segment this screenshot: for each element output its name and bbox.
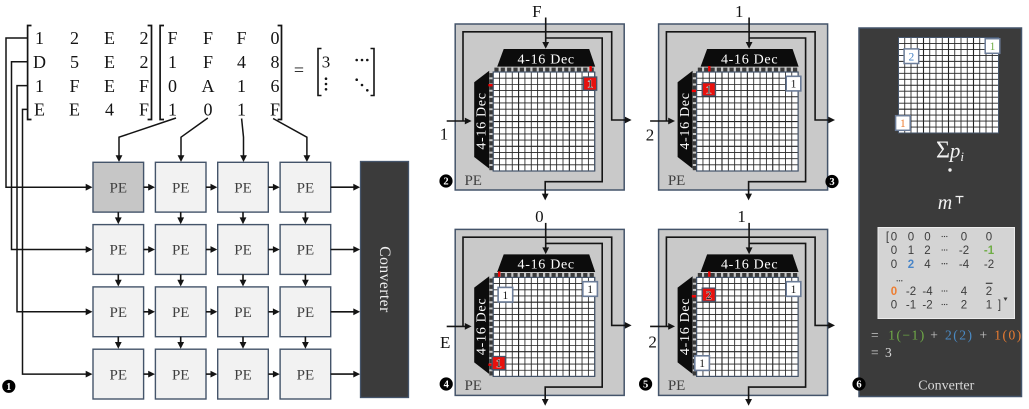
svg-text:-2: -2 <box>922 300 932 312</box>
svg-text:= 3: = 3 <box>871 345 893 360</box>
svg-text:2: 2 <box>646 126 655 145</box>
svg-text:E: E <box>104 28 115 48</box>
svg-text:4-16 Dec: 4-16 Dec <box>721 52 778 67</box>
svg-text:4: 4 <box>444 380 450 391</box>
svg-text:2: 2 <box>648 333 657 352</box>
svg-text:1: 1 <box>168 100 177 120</box>
svg-text:4: 4 <box>924 259 931 271</box>
svg-text:1: 1 <box>237 100 246 120</box>
svg-text:0: 0 <box>891 232 897 244</box>
svg-text:PE: PE <box>172 367 190 383</box>
svg-text:5: 5 <box>70 52 79 72</box>
svg-text:1: 1 <box>168 52 177 72</box>
svg-text:0: 0 <box>908 232 914 244</box>
svg-text:6: 6 <box>856 380 861 391</box>
svg-text:F: F <box>203 52 213 72</box>
svg-text:PE: PE <box>297 180 315 196</box>
svg-text:2: 2 <box>140 28 149 48</box>
svg-text:F: F <box>203 28 213 48</box>
svg-text:0: 0 <box>891 245 897 257</box>
svg-text:Converter: Converter <box>918 379 974 394</box>
svg-text:4-16 Dec: 4-16 Dec <box>518 52 575 67</box>
svg-text:PE: PE <box>668 173 686 189</box>
svg-text:E: E <box>440 333 450 352</box>
svg-text:]: ] <box>998 300 1001 312</box>
svg-text:PE: PE <box>172 180 190 196</box>
svg-text:4-16 Dec: 4-16 Dec <box>678 92 693 149</box>
svg-text:1: 1 <box>986 300 992 312</box>
svg-text:0: 0 <box>924 232 930 244</box>
svg-text:-2: -2 <box>906 286 916 298</box>
svg-text:0: 0 <box>891 286 897 298</box>
svg-text:PE: PE <box>172 305 190 321</box>
svg-text:F: F <box>236 28 246 48</box>
svg-text:2: 2 <box>924 245 930 257</box>
svg-text:0: 0 <box>961 232 967 244</box>
svg-text:E: E <box>104 52 115 72</box>
svg-text:1: 1 <box>503 290 509 302</box>
svg-text:-2: -2 <box>959 245 969 257</box>
svg-text:1: 1 <box>706 84 712 96</box>
svg-text:PE: PE <box>464 173 482 189</box>
svg-text:F: F <box>139 76 149 96</box>
svg-text:PE: PE <box>234 243 252 259</box>
svg-text:1: 1 <box>440 125 449 144</box>
svg-text:PE: PE <box>668 378 686 394</box>
svg-text:0: 0 <box>986 232 992 244</box>
svg-text:E: E <box>104 76 115 96</box>
svg-text:1: 1 <box>6 382 11 393</box>
svg-text:1: 1 <box>990 41 996 53</box>
svg-text:-4: -4 <box>959 259 970 271</box>
svg-text:PE: PE <box>110 180 128 196</box>
svg-text:PE: PE <box>110 305 128 321</box>
svg-text:Σpi: Σpi <box>936 138 964 165</box>
svg-text:2: 2 <box>909 51 915 63</box>
svg-text:2: 2 <box>986 286 992 298</box>
svg-text:0: 0 <box>891 300 897 312</box>
svg-text:E: E <box>69 100 80 120</box>
svg-text:2: 2 <box>908 259 914 271</box>
svg-text:F: F <box>270 100 280 120</box>
svg-text:4: 4 <box>237 52 246 72</box>
svg-text:E: E <box>34 100 45 120</box>
svg-text:PE: PE <box>110 367 128 383</box>
svg-text:-4: -4 <box>922 286 933 298</box>
svg-text:2: 2 <box>443 177 448 188</box>
svg-text:2: 2 <box>70 28 79 48</box>
svg-text:1: 1 <box>737 207 746 226</box>
svg-text:0: 0 <box>271 28 280 48</box>
svg-text:0: 0 <box>168 76 177 96</box>
svg-text:0: 0 <box>204 100 213 120</box>
svg-text:-2: -2 <box>984 259 994 271</box>
svg-text:PE: PE <box>297 305 315 321</box>
svg-text:1: 1 <box>791 284 797 296</box>
svg-text:+: + <box>980 327 989 342</box>
svg-text:D: D <box>33 52 46 72</box>
svg-text:1: 1 <box>900 118 906 130</box>
svg-text:1(0): 1(0) <box>994 327 1023 342</box>
svg-text:1: 1 <box>699 358 705 370</box>
svg-text:1(−1): 1(−1) <box>888 327 926 342</box>
svg-text:8: 8 <box>271 52 280 72</box>
svg-text:PE: PE <box>110 243 128 259</box>
svg-text:1: 1 <box>496 358 502 370</box>
svg-text:4: 4 <box>105 100 114 120</box>
svg-text:4-16 Dec: 4-16 Dec <box>475 298 490 355</box>
svg-text:-1: -1 <box>906 300 916 312</box>
svg-text:=: = <box>871 327 880 342</box>
svg-text:PE: PE <box>234 180 252 196</box>
svg-text:PE: PE <box>464 378 482 394</box>
svg-text:1: 1 <box>735 2 744 21</box>
svg-text:-1: -1 <box>984 245 995 257</box>
svg-text:2(2): 2(2) <box>945 327 974 342</box>
svg-text:F: F <box>167 28 177 48</box>
svg-text:0: 0 <box>891 259 897 271</box>
svg-text:4-16 Dec: 4-16 Dec <box>475 92 490 149</box>
svg-text:2: 2 <box>706 290 712 302</box>
svg-text:PE: PE <box>297 243 315 259</box>
svg-text:+: + <box>930 327 939 342</box>
svg-text:4-16 Dec: 4-16 Dec <box>518 258 575 273</box>
svg-text:F: F <box>139 100 149 120</box>
svg-text:1: 1 <box>35 28 44 48</box>
svg-text:1: 1 <box>587 79 593 91</box>
svg-text:1: 1 <box>791 79 797 91</box>
svg-text:2: 2 <box>961 300 967 312</box>
svg-text:PE: PE <box>297 367 315 383</box>
svg-text:1: 1 <box>587 284 593 296</box>
svg-text:4: 4 <box>961 286 968 298</box>
svg-text:1: 1 <box>35 76 44 96</box>
svg-text:F: F <box>69 76 79 96</box>
svg-text:=: = <box>294 60 304 80</box>
svg-text:PE: PE <box>234 367 252 383</box>
svg-text:PE: PE <box>172 243 190 259</box>
svg-text:4-16 Dec: 4-16 Dec <box>678 298 693 355</box>
svg-text:5: 5 <box>643 380 648 391</box>
svg-text:4-16 Dec: 4-16 Dec <box>721 258 778 273</box>
svg-text:F: F <box>532 2 541 21</box>
svg-text:1: 1 <box>237 76 246 96</box>
svg-text:m: m <box>938 192 952 214</box>
svg-text:3: 3 <box>829 177 834 188</box>
svg-text:1: 1 <box>908 245 914 257</box>
svg-text:6: 6 <box>271 76 280 96</box>
svg-text:3: 3 <box>322 52 331 71</box>
svg-text:Converter: Converter <box>376 246 393 313</box>
svg-text:0: 0 <box>535 207 544 226</box>
svg-text:A: A <box>202 76 215 96</box>
svg-text:PE: PE <box>234 305 252 321</box>
svg-text:2: 2 <box>140 52 149 72</box>
